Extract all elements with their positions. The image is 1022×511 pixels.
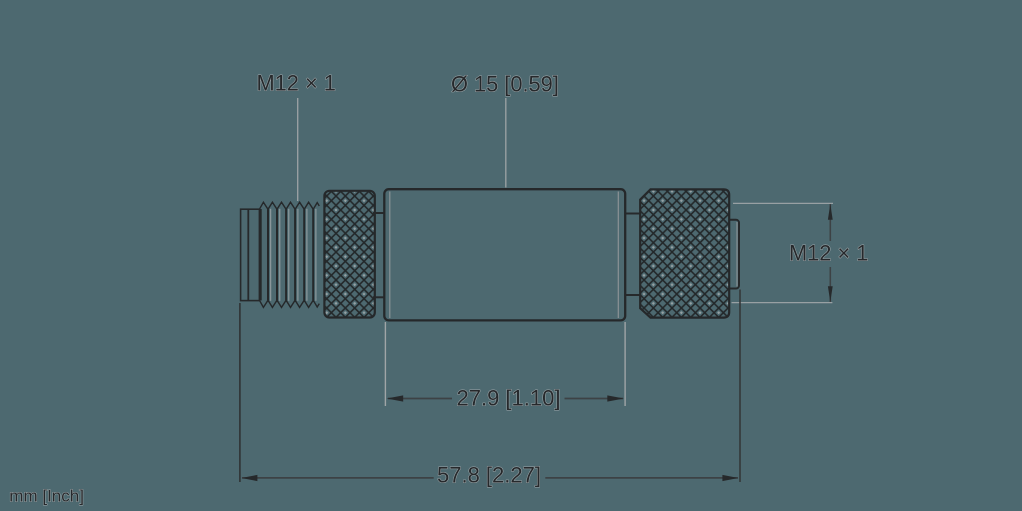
svg-text:57.8 [2.27]: 57.8 [2.27] <box>437 463 541 488</box>
svg-text:27.9 [1.10]: 27.9 [1.10] <box>457 386 561 411</box>
svg-text:M12 × 1: M12 × 1 <box>257 71 336 96</box>
svg-text:M12 × 1: M12 × 1 <box>789 240 868 265</box>
svg-text:Ø 15 [0.59]: Ø 15 [0.59] <box>451 72 559 97</box>
svg-text:mm [Inch]: mm [Inch] <box>9 487 84 506</box>
